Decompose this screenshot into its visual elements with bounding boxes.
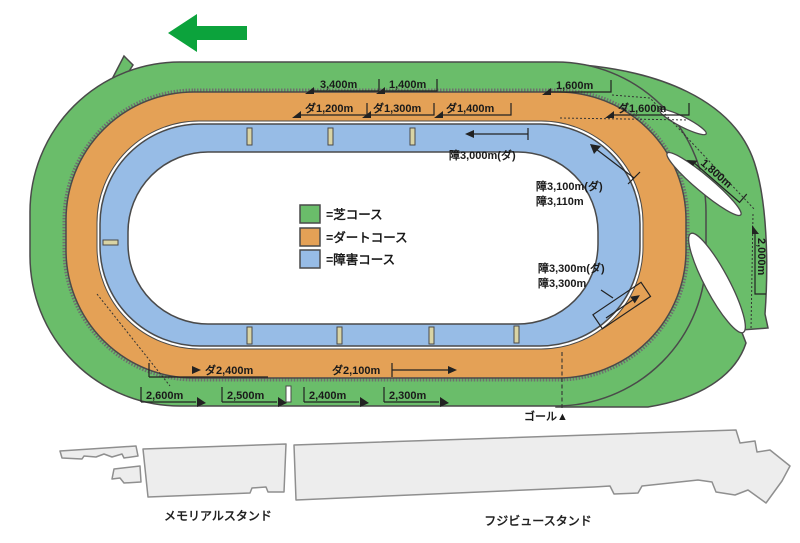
label-goal: ゴール▲ (524, 409, 568, 423)
label-dirt-2100: ダ2,100m (332, 363, 381, 377)
stand-memorial-shape (143, 444, 286, 497)
grandstands (60, 430, 790, 503)
label-stand-fujiview: フジビュースタンド (484, 513, 591, 528)
label-turf-3400: 3,400m (320, 79, 358, 91)
direction-arrow-icon (168, 14, 247, 52)
label-turf-2000: 2,000m (755, 238, 767, 276)
legend-swatch-turf (300, 205, 320, 223)
stand-small-shape (60, 446, 138, 459)
legend-label-turf: =芝コース (326, 207, 383, 222)
label-jump-3300: 障3,300m (538, 276, 587, 290)
legend-swatch-dirt (300, 228, 320, 246)
racecourse-diagram: 3,400m 1,400m ダ1,200m ダ1,300m ダ1,400m 1,… (0, 0, 800, 543)
turf-gap-notch (286, 386, 291, 402)
label-dirt-1600: ダ1,600m (618, 101, 667, 115)
label-turf-2500: 2,500m (227, 390, 265, 402)
legend-label-jump: =障害コース (326, 252, 395, 267)
label-jump-3110: 障3,110m (536, 194, 584, 208)
label-jump-3100: 障3,100m(ダ) (536, 179, 603, 193)
label-jump-3000: 障3,000m(ダ) (449, 148, 516, 162)
label-turf-2400: 2,400m (309, 390, 347, 402)
label-turf-2600: 2,600m (146, 390, 184, 402)
label-turf-1600: 1,600m (556, 80, 594, 92)
label-jump-3300-d: 障3,300m(ダ) (538, 261, 605, 275)
label-turf-1400: 1,400m (389, 79, 427, 91)
label-dirt-1200: ダ1,200m (305, 101, 354, 115)
label-dirt-1400: ダ1,400m (446, 101, 495, 115)
label-stand-memorial: メモリアルスタンド (164, 509, 272, 523)
stand-small-annex-shape (112, 466, 141, 483)
stand-fujiview-shape (294, 430, 790, 503)
legend-swatch-jump (300, 250, 320, 268)
label-turf-2300: 2,300m (389, 390, 427, 402)
label-dirt-2400: ダ2,400m (205, 363, 254, 377)
label-dirt-1300: ダ1,300m (373, 101, 422, 115)
legend-label-dirt: =ダートコース (326, 230, 408, 245)
